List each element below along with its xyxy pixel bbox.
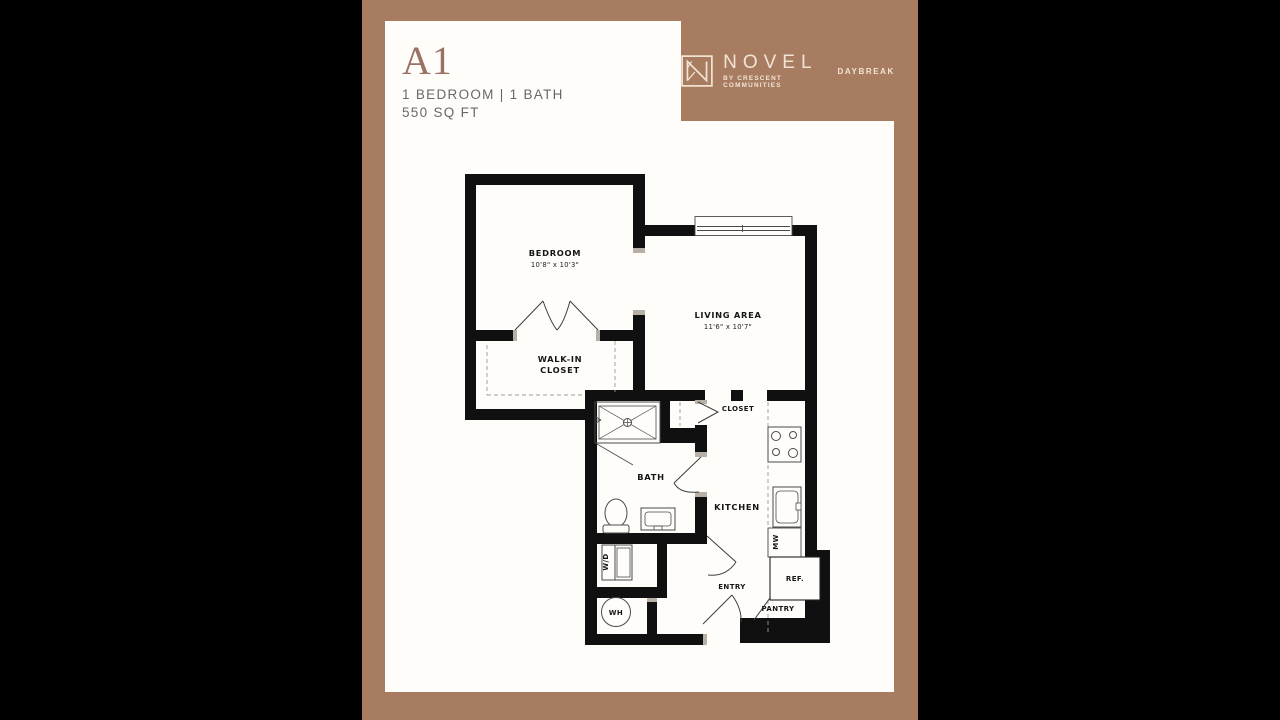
jamb-cap xyxy=(633,248,645,253)
wall-segment xyxy=(465,409,593,420)
stove xyxy=(768,427,801,462)
living-dims: 11'6" x 10'7" xyxy=(704,323,752,331)
flyer-page: A1 1 BEDROOM | 1 BATH 550 SQ FT NOVEL BY… xyxy=(385,21,894,692)
entry-door xyxy=(703,595,741,624)
ref-label: REF. xyxy=(786,575,804,583)
door-jambs xyxy=(513,248,707,645)
bedroom-dims: 10'8" x 10'3" xyxy=(531,261,579,269)
jamb-cap xyxy=(513,330,517,341)
jamb-cap xyxy=(695,492,707,497)
wd-label: W/D xyxy=(602,553,610,570)
wall-segment xyxy=(600,330,633,341)
wall-segment xyxy=(805,225,817,574)
wall-segment xyxy=(657,544,667,587)
toilet xyxy=(603,499,629,533)
laundry-door xyxy=(707,536,736,575)
jamb-cap xyxy=(703,634,707,645)
wall-segment xyxy=(465,174,645,185)
shower xyxy=(595,402,660,465)
entry-label: ENTRY xyxy=(718,583,746,591)
pantry-label: PANTRY xyxy=(761,605,795,613)
burner xyxy=(773,449,780,456)
living-label: LIVING AREA xyxy=(694,310,761,320)
bath-label: BATH xyxy=(637,472,665,482)
wall-segment xyxy=(585,634,707,645)
bedroom-label: BEDROOM xyxy=(529,248,582,258)
living-window xyxy=(695,217,792,236)
wic-double-door xyxy=(515,301,598,330)
wall-segment xyxy=(587,390,705,401)
faucet xyxy=(796,503,801,510)
wall-segment xyxy=(633,174,645,253)
wall-segment xyxy=(740,618,830,643)
kitchen-label: KITCHEN xyxy=(714,502,760,512)
burner xyxy=(790,432,797,439)
kitchen-sink xyxy=(773,487,801,527)
wall-segment xyxy=(585,533,707,544)
jamb-cap xyxy=(596,330,600,341)
burner xyxy=(789,449,798,458)
wall-segment xyxy=(695,492,707,533)
floorplan-drawing: BEDROOM 10'8" x 10'3" LIVING AREA 11'6" … xyxy=(385,21,894,692)
wic-label-2: CLOSET xyxy=(540,365,580,375)
wall-segment xyxy=(731,390,743,401)
jamb-cap xyxy=(695,452,707,457)
bath-door xyxy=(674,457,701,492)
wall-segment xyxy=(465,174,476,420)
bath-vanity-sink xyxy=(641,508,675,530)
mw-label: MW xyxy=(772,534,780,550)
wall-segment xyxy=(647,598,657,634)
shower-head-icon xyxy=(596,417,601,423)
wall-segment xyxy=(476,330,513,341)
wic-label-1: WALK-IN xyxy=(538,354,583,364)
wall-segment xyxy=(633,310,645,401)
wall-segment xyxy=(633,225,697,236)
flyer-stage: A1 1 BEDROOM | 1 BATH 550 SQ FT NOVEL BY… xyxy=(0,0,1280,720)
shower-door xyxy=(597,444,633,465)
burner xyxy=(772,432,781,441)
jamb-cap xyxy=(647,598,657,602)
closet-label: CLOSET xyxy=(722,405,754,413)
wh-label: WH xyxy=(609,609,623,617)
faucet xyxy=(654,526,662,530)
jamb-cap xyxy=(633,310,645,315)
wall-segment xyxy=(585,587,667,598)
linen-closet-door xyxy=(698,402,718,423)
